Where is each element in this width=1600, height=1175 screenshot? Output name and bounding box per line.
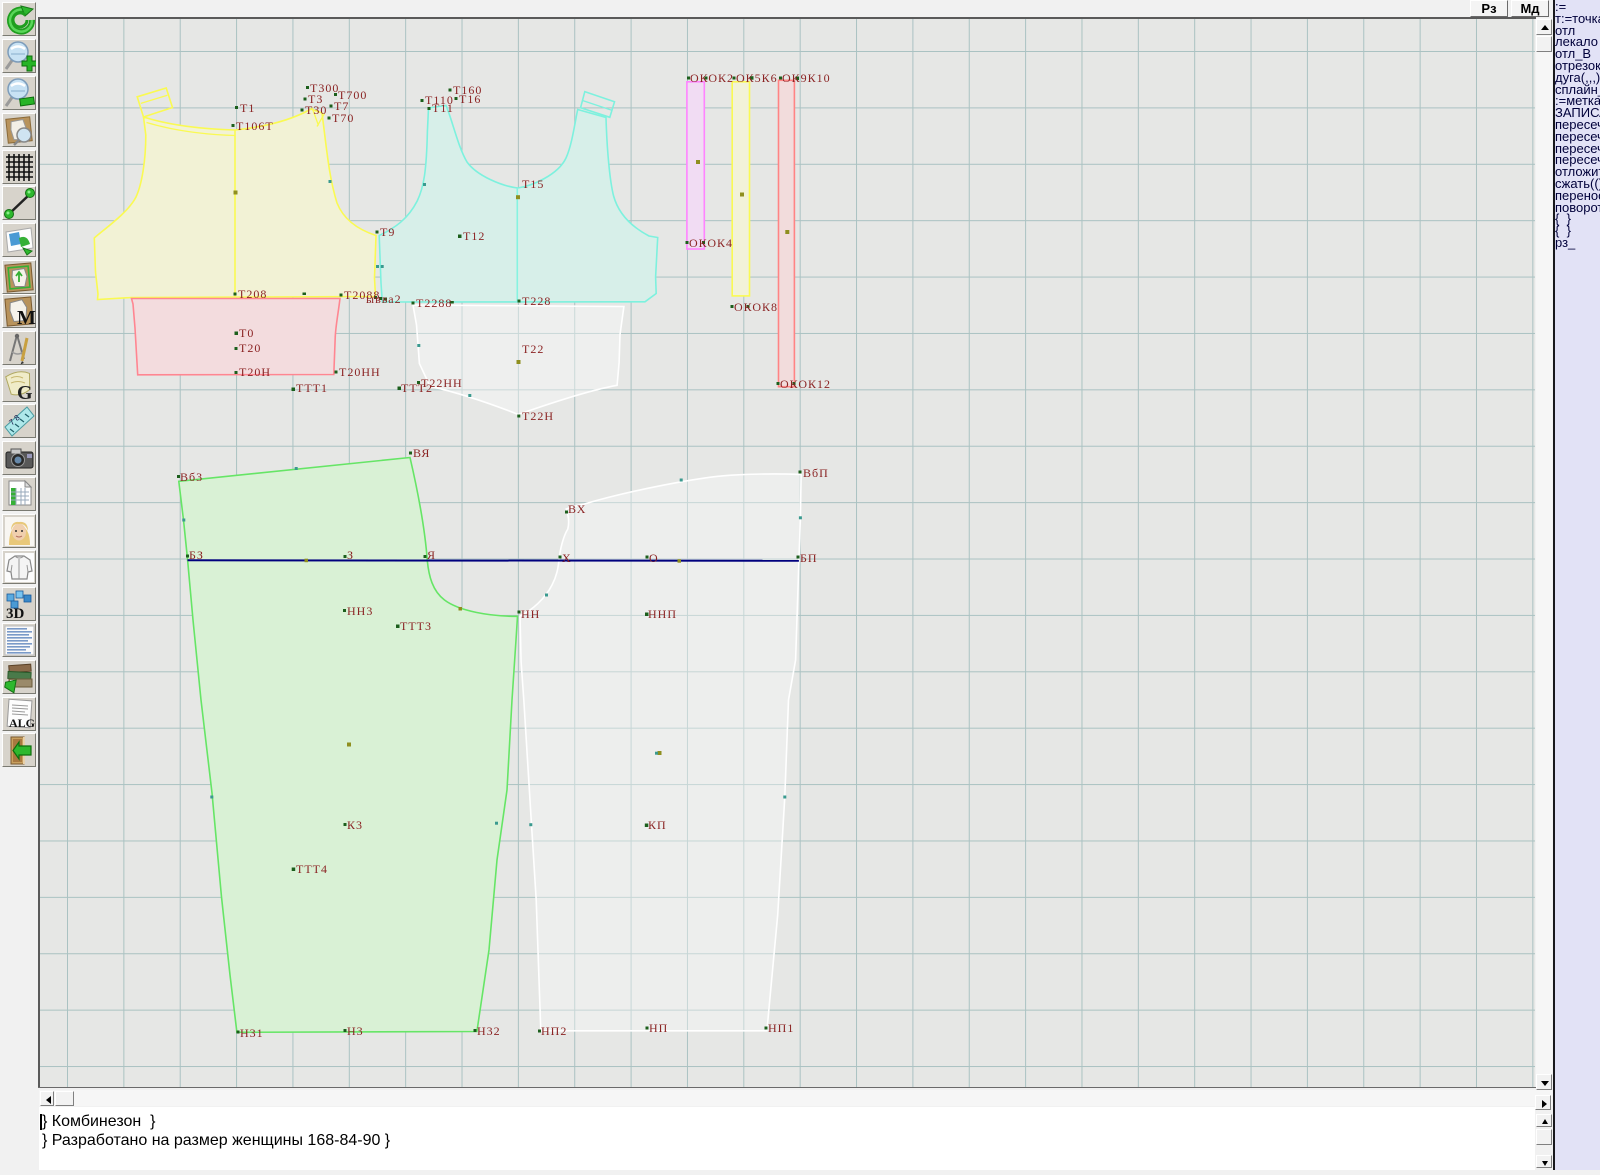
svg-text:НП2: НП2 bbox=[541, 1024, 567, 1038]
svg-text:ННП: ННП bbox=[648, 607, 677, 621]
svg-text:Т22: Т22 bbox=[522, 342, 544, 356]
svg-text:Т16: Т16 bbox=[459, 92, 481, 106]
svg-text:ТТТ3: ТТТ3 bbox=[400, 619, 432, 633]
svg-text:ОК5К6: ОК5К6 bbox=[736, 71, 778, 85]
svg-text:КП: КП bbox=[648, 818, 667, 832]
svg-text:БЗ: БЗ bbox=[189, 548, 204, 562]
svg-text:Я: Я bbox=[427, 548, 436, 562]
svg-text:ОКОК8: ОКОК8 bbox=[734, 300, 778, 314]
svg-text:НН: НН bbox=[521, 607, 540, 621]
svg-text:ВбП: ВбП bbox=[803, 466, 829, 480]
svg-text:НН3: НН3 bbox=[347, 604, 373, 618]
svg-text:ОКОК12: ОКОК12 bbox=[780, 377, 831, 391]
svg-text:Т12: Т12 bbox=[463, 229, 485, 243]
svg-text:ТТТ2: ТТТ2 bbox=[401, 381, 433, 395]
svg-text:О: О bbox=[649, 551, 659, 565]
svg-text:Т20Н: Т20Н bbox=[239, 365, 271, 379]
svg-text:Вб3: Вб3 bbox=[180, 470, 203, 484]
svg-text:Т0: Т0 bbox=[239, 326, 254, 340]
svg-text:Т20НН: Т20НН bbox=[339, 365, 381, 379]
svg-text:ОК9К10: ОК9К10 bbox=[782, 71, 831, 85]
svg-text:НП1: НП1 bbox=[768, 1021, 794, 1035]
svg-text:ВЯ: ВЯ bbox=[413, 446, 430, 460]
svg-text:Т70: Т70 bbox=[332, 111, 354, 125]
svg-text:ОКОК2: ОКОК2 bbox=[690, 71, 734, 85]
svg-text:M: M bbox=[17, 307, 36, 328]
svg-text:ALG: ALG bbox=[9, 716, 35, 730]
svg-text:К3: К3 bbox=[347, 818, 363, 832]
svg-text:Т9: Т9 bbox=[380, 225, 395, 239]
svg-text:Т228: Т228 bbox=[522, 294, 551, 308]
svg-text:Т11: Т11 bbox=[432, 101, 454, 115]
svg-text:ТТТ1: ТТТ1 bbox=[296, 381, 328, 395]
svg-text:Т20: Т20 bbox=[239, 341, 261, 355]
svg-text:Т106Т: Т106Т bbox=[236, 119, 274, 133]
svg-text:Т208: Т208 bbox=[238, 287, 267, 301]
svg-text:Т2288: Т2288 bbox=[416, 296, 452, 310]
svg-text:ТТТ4: ТТТ4 bbox=[296, 862, 328, 876]
svg-text:Х: Х bbox=[562, 551, 572, 565]
svg-text:Т30: Т30 bbox=[305, 103, 327, 117]
svg-text:3D: 3D bbox=[6, 606, 25, 621]
svg-text:Н3: Н3 bbox=[347, 1024, 364, 1038]
svg-text:ВХ: ВХ bbox=[568, 502, 586, 516]
svg-text:БП: БП bbox=[800, 551, 818, 565]
svg-text:НП: НП bbox=[649, 1021, 668, 1035]
svg-text:Т22Н: Т22Н bbox=[522, 409, 554, 423]
svg-text:ОКОК4: ОКОК4 bbox=[689, 236, 733, 250]
svg-text:Т1: Т1 bbox=[240, 101, 255, 115]
svg-text:З: З bbox=[347, 548, 354, 562]
svg-text:Т15: Т15 bbox=[522, 177, 544, 191]
svg-text:Н32: Н32 bbox=[477, 1024, 501, 1038]
svg-text:ывва2: ывва2 bbox=[366, 292, 402, 306]
svg-text:Н31: Н31 bbox=[240, 1026, 264, 1040]
svg-text:G: G bbox=[17, 382, 33, 402]
